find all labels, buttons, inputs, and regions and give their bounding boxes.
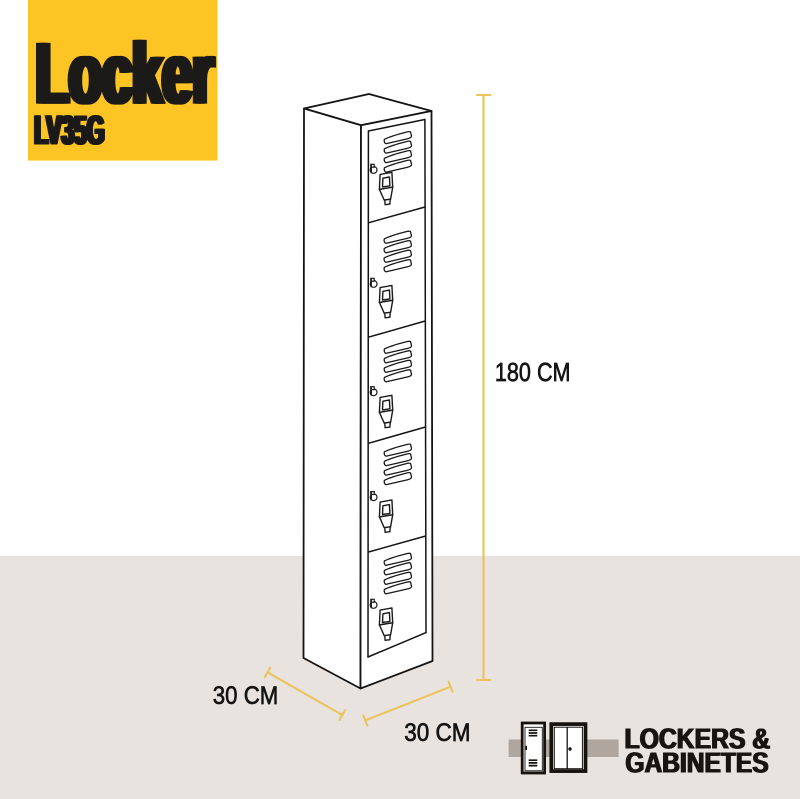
svg-text:30 CM: 30 CM xyxy=(404,719,470,748)
svg-text:30 CM: 30 CM xyxy=(213,682,278,711)
svg-text:LV35G: LV35G xyxy=(36,107,106,153)
svg-text:180 CM: 180 CM xyxy=(495,358,571,387)
svg-text:GABINETES: GABINETES xyxy=(626,747,769,779)
